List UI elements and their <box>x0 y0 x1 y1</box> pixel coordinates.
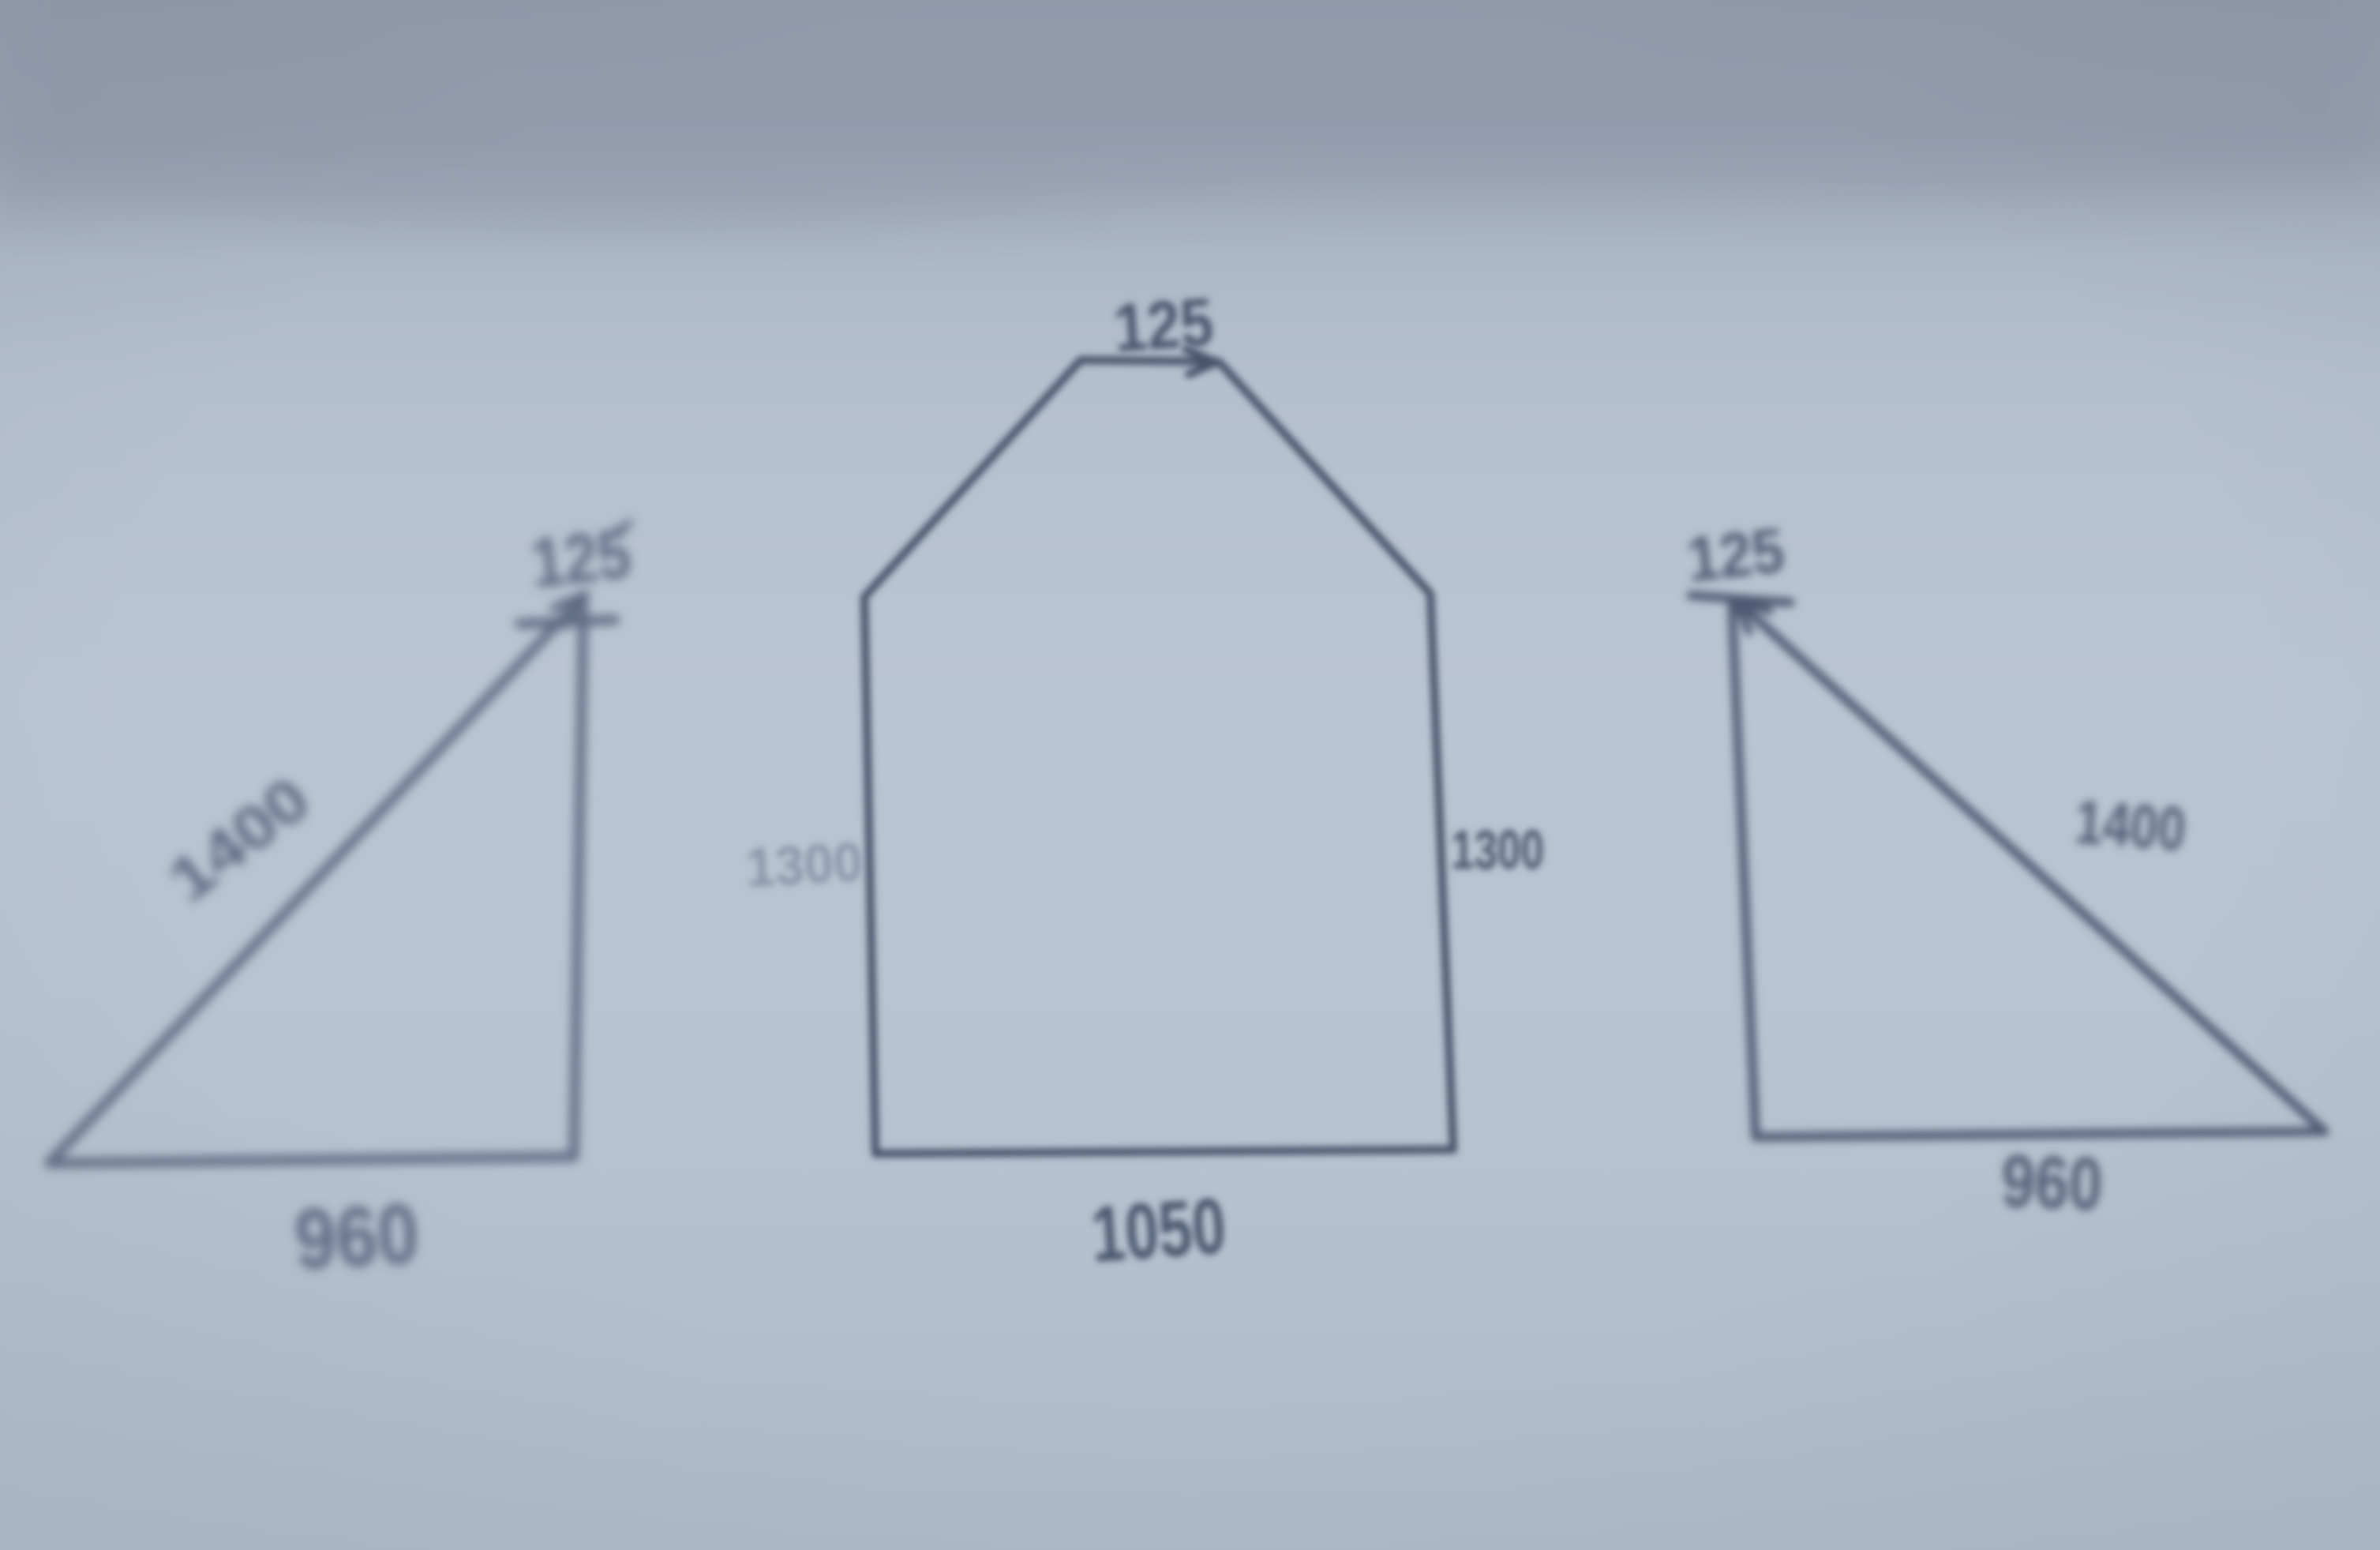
svg-text:960: 960 <box>292 1185 421 1287</box>
svg-text:125: 125 <box>1684 515 1788 595</box>
svg-text:1300: 1300 <box>1451 819 1544 880</box>
svg-text:125: 125 <box>1111 284 1216 367</box>
svg-text:1050: 1050 <box>1089 1181 1228 1279</box>
svg-text:1400: 1400 <box>2073 786 2188 864</box>
svg-text:1300: 1300 <box>744 831 864 899</box>
svg-text:960: 960 <box>2000 1139 2105 1226</box>
